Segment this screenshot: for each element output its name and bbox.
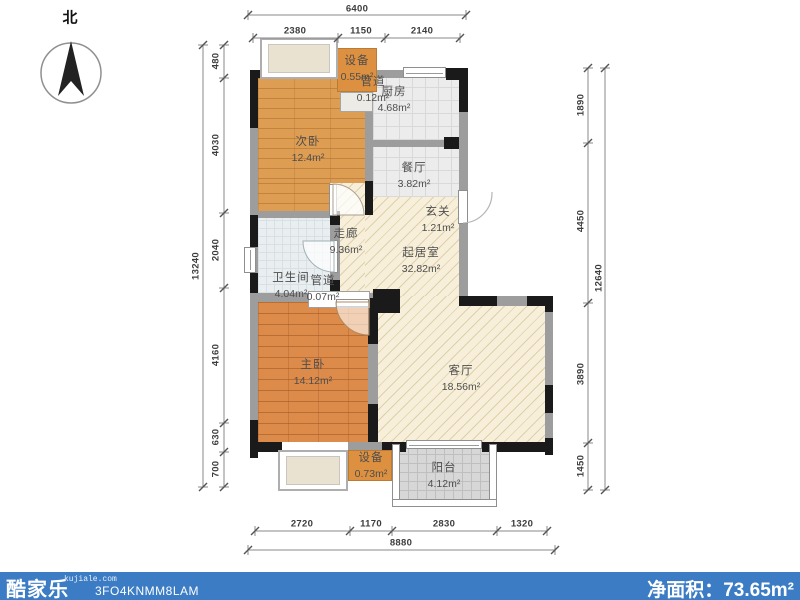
wall-step-black-1 [459,296,497,306]
wall-bedroom2-kitchen-black-2 [365,181,373,215]
bay-window-top-sill [268,44,330,73]
room-name: 卫生间 [272,270,310,286]
wall-right-upper-black [459,68,468,112]
master-bedroom-door [336,299,369,307]
net-area: 净面积：73.65m² [647,575,794,600]
plan-code: 3FO4KNMM8LAM [95,584,199,598]
room-area: 32.82m² [402,261,441,277]
room-area: 0.07m² [307,289,340,305]
room-area: 1.21m² [422,220,455,236]
wall-right-lower-black-2 [545,385,553,413]
room-area: 4.68m² [378,100,411,116]
room-area: 14.12m² [294,373,333,389]
room-area: 18.56m² [442,379,481,395]
room-label-dining: 餐厅 3.82m² [398,160,431,192]
room-label-kitchen: 厨房 4.68m² [378,84,411,116]
room-name: 玄关 [422,204,455,220]
bay-window-bottom-sill [286,456,340,485]
compass-needle-icon [58,41,84,96]
room-name: 主卧 [294,357,333,373]
room-label-equipment-bottom: 设备 0.73m² [355,450,388,482]
room-name: 客厅 [442,363,481,379]
dim-top-total: 6400 [346,4,368,15]
room-label-second-bedroom: 次卧 12.4m² [292,134,325,166]
room-label-sitting-room: 客厅 18.56m² [442,363,481,395]
dim-right-seg-3: 3890 [576,363,587,385]
dim-bottom-seg-3: 2830 [433,519,455,530]
footer-bar: 酷家乐 kujiale.com 3FO4KNMM8LAM 净面积：73.65m² [0,572,800,600]
dim-right-seg-1: 1890 [576,94,587,116]
room-label-balcony: 阳台 4.12m² [428,460,461,492]
floorplan-canvas: 北 [0,0,800,600]
dim-left-total: 13240 [191,252,202,280]
wall-top-black-right [446,68,459,80]
entry-door [458,190,468,224]
compass-circle [41,43,101,103]
dim-bottom-seg-2: 1170 [360,519,382,530]
wall-left-black-1 [250,70,258,128]
balcony-window [406,440,482,449]
room-label-corridor: 走廊 9.36m² [330,226,363,258]
room-name: 餐厅 [398,160,431,176]
dim-left-seg-1: 480 [211,53,222,70]
room-name: 厨房 [378,84,411,100]
dimension-lines-left [198,45,229,487]
wall-bedroom2-bathroom [258,211,330,218]
bathroom-window [244,247,256,273]
kujiale-logo: 酷家乐 [6,573,69,600]
dim-bottom-seg-1: 2720 [291,519,313,530]
wall-left-black-4 [250,420,258,458]
room-label-entry: 玄关 1.21m² [422,204,455,236]
dim-top-seg-2: 1150 [350,26,372,37]
room-name: 走廊 [330,226,363,242]
room-name: 阳台 [428,460,461,476]
wall-right-lower-black-1 [545,296,553,312]
room-area: 12.4m² [292,150,325,166]
balcony-frame-left [392,444,400,506]
dim-left-seg-4: 4160 [211,344,222,366]
room-name: 设备 [355,450,388,466]
kujiale-website: kujiale.com [64,575,117,584]
room-area: 9.36m² [330,242,363,258]
dim-left-seg-2: 4030 [211,134,222,156]
dimension-ticks-left [199,41,228,491]
dim-right-seg-2: 4450 [576,210,587,232]
room-name: 管道 [307,273,340,289]
balcony-frame-bottom [392,499,497,507]
dim-right-seg-4: 1450 [576,455,587,477]
room-area: 0.73m² [355,466,388,482]
wall-kitchen-dining-black [444,137,459,149]
room-name: 次卧 [292,134,325,150]
room-area: 3.82m² [398,176,431,192]
room-label-living: 起居室 32.82m² [402,245,441,277]
room-area: 4.12m² [428,476,461,492]
dim-bottom-seg-4: 1320 [511,519,533,530]
dim-top-seg-3: 2140 [411,26,433,37]
room-area: 4.04m² [272,286,310,302]
dim-right-total: 12640 [594,264,605,292]
wall-master-living-black-2 [368,404,378,442]
wall-step-gray [497,296,527,306]
room-name: 设备 [341,53,374,69]
room-label-pipe-bottom: 管道 0.07m² [307,273,340,305]
dim-bottom-total: 8880 [390,538,412,549]
floor-second-bedroom-notch [258,183,330,211]
north-label: 北 [62,7,77,28]
dim-top-seg-1: 2380 [284,26,306,37]
room-label-bathroom: 卫生间 4.04m² [272,270,310,302]
wall-left-black-2 [250,215,258,247]
dim-left-seg-3: 2040 [211,239,222,261]
second-bedroom-door [329,184,337,216]
room-name: 起居室 [402,245,441,261]
room-label-master-bedroom: 主卧 14.12m² [294,357,333,389]
net-area-value: 73.65m² [723,580,794,600]
wall-right-lower [545,296,553,455]
net-area-label: 净面积： [647,580,723,600]
dim-left-seg-6: 700 [211,461,222,478]
dim-left-seg-5: 630 [211,429,222,446]
kitchen-window [403,67,446,78]
balcony-frame-right [489,444,497,506]
